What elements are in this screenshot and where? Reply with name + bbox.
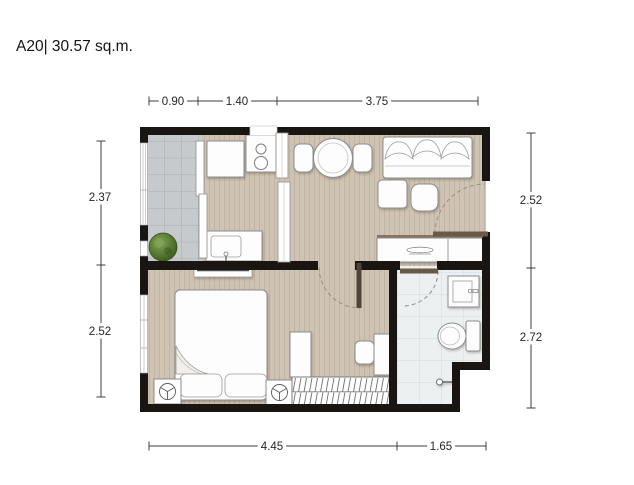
dim-label: 2.52 [89,326,111,338]
kitchen-glass-partition [276,133,290,262]
bedroom-door-leaf [357,263,362,308]
dimension-top: 0.90 1.40 3.75 [149,96,478,108]
basin-faucet [468,289,472,293]
plant-icon [149,233,177,261]
pillow [225,374,267,397]
wall-left [140,127,148,143]
dim-label: 2.52 [520,195,542,207]
stove-burner [256,144,266,154]
wall-bottom [140,404,460,412]
dimension-right: 2.52 2.72 [520,133,542,408]
kitchen-counter [207,141,244,177]
tall-cabinet [290,332,311,377]
desk-chair [355,341,374,364]
wall-left [140,225,148,241]
wardrobe [292,377,390,406]
dim-label: 0.90 [162,96,184,108]
dim-label: 2.72 [520,332,542,344]
wall-top [140,127,490,135]
dim-label: 1.40 [226,96,248,108]
wall-right [482,232,490,362]
entrance-door-leaf [433,232,488,237]
floor-plan-drawing: 0.90 1.40 3.75 2.37 2.52 2.52 2.72 4.45 … [0,0,634,485]
pillow [180,374,222,397]
dimension-bottom: 4.45 1.65 [149,441,486,453]
ottoman [378,180,407,208]
dim-label: 2.37 [89,192,111,204]
wall-bathroom-left [389,270,397,404]
balcony-window-small [141,241,148,256]
dining-chair [294,144,313,172]
floor-plan-page: 0.90 1.40 3.75 2.37 2.52 2.52 2.72 4.45 … [0,0,634,485]
shower-floor [393,366,456,408]
stove-wall-window [250,126,277,136]
lamp-icon [272,385,288,401]
wall-mid [140,261,318,270]
lamp-icon [160,384,176,400]
stove-burner [255,157,268,170]
wall-mid [355,261,400,270]
plant-texture [164,247,172,255]
toilet-tank [466,321,480,351]
plant-texture [154,238,164,248]
page-title: A20| 30.57 sq.m. [16,38,133,55]
desk [374,334,391,375]
bathroom-door-leaf [400,269,438,274]
dimension-left: 2.37 2.52 [89,141,111,397]
console-dish [407,247,433,253]
dining-chair [353,144,372,172]
dim-label: 4.45 [261,441,283,453]
dining-table [314,139,353,178]
sink-faucet-head [224,252,228,256]
dim-label: 1.65 [430,441,452,453]
balcony [149,233,177,261]
dim-label: 3.75 [366,96,388,108]
basin-faucet-handle [473,290,478,293]
bedroom-window [141,295,148,373]
wall-right [482,127,490,181]
wall-mid [437,261,482,270]
shower-valve [437,379,443,385]
balcony-railing [141,143,148,225]
side-table [411,184,438,211]
